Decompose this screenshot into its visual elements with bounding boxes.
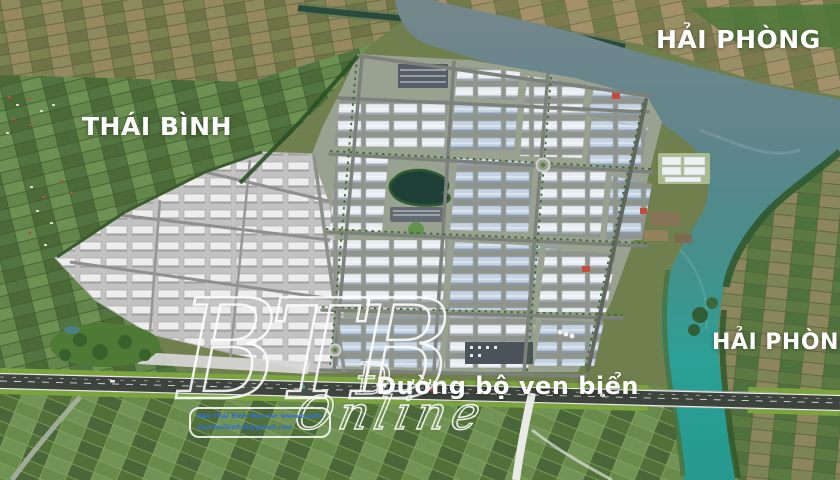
park-lake — [390, 170, 450, 206]
watermark-credit-box: Báo Thái Bình điện tử: www.baothaibinh.c… — [189, 407, 331, 438]
watermark-credit-line2: baothaibinhdt@gmail.com — [197, 422, 323, 433]
watermark-credit-line1: Báo Thái Bình điện tử: www.baothaibinh.c… — [197, 411, 323, 422]
aerial-masterplan-image: THÁI BÌNH HẢI PHÒNG HẢI PHÒNG BTB Đ Onli… — [0, 0, 840, 480]
west-park-trees — [50, 323, 160, 367]
label-hai-phong-right: HẢI PHÒNG — [712, 330, 840, 355]
label-coastal-road: Đường bộ ven biển — [376, 372, 639, 400]
label-hai-phong-top: HẢI PHÒNG — [656, 25, 821, 54]
label-thai-binh: THÁI BÌNH — [82, 112, 232, 141]
